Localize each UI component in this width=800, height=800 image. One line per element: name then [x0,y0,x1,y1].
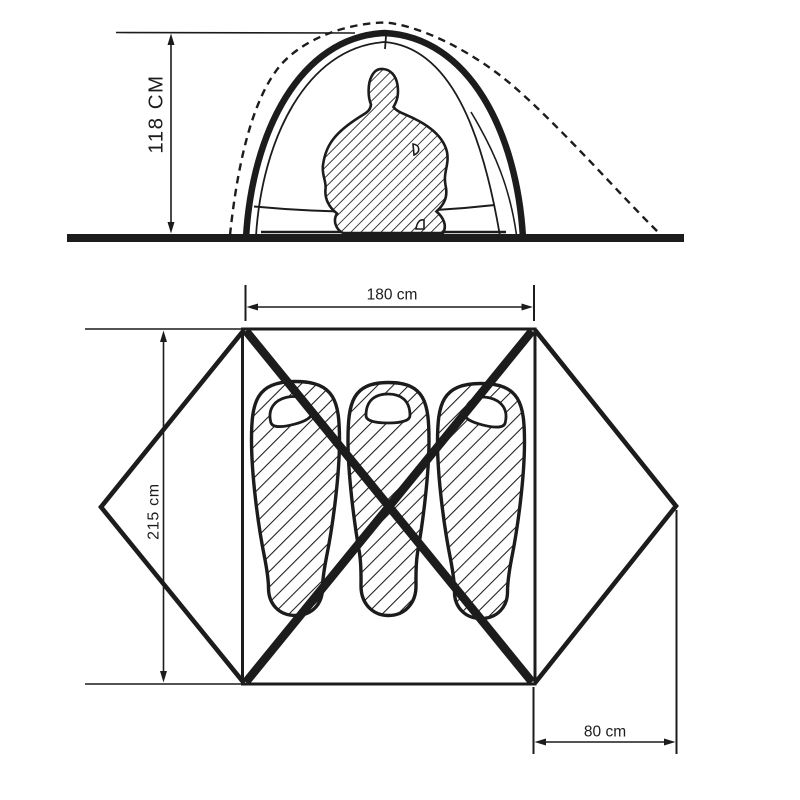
svg-text:215 cm: 215 cm [146,483,163,540]
svg-text:180 cm: 180 cm [367,287,418,304]
svg-text:118 CM: 118 CM [145,74,168,153]
svg-text:80 cm: 80 cm [584,724,626,741]
